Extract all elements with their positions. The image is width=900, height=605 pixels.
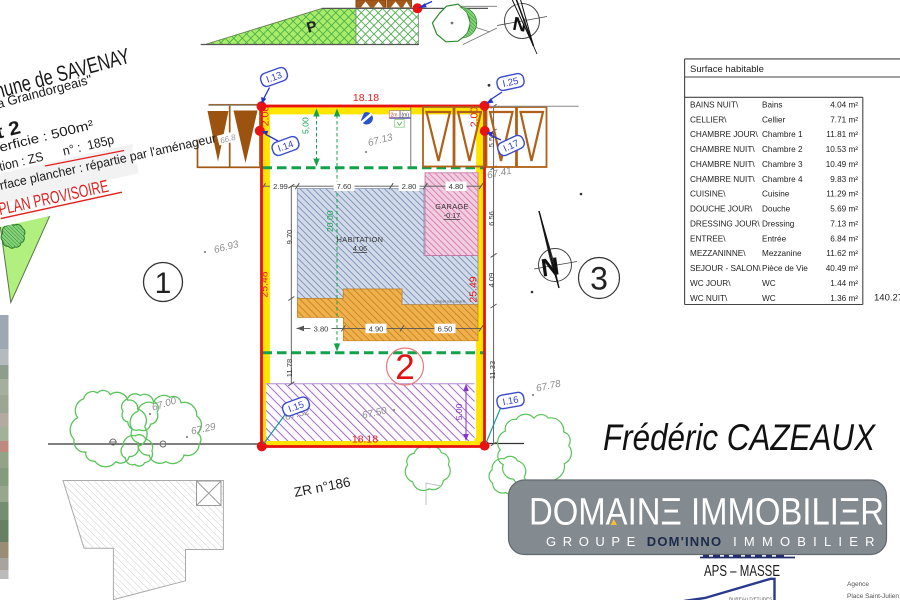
- svg-text:140.27: 140.27: [874, 293, 900, 304]
- svg-text:CHAMBRE NUIT\: CHAMBRE NUIT\: [690, 160, 755, 169]
- svg-text:3: 3: [590, 261, 608, 297]
- svg-text:5,00: 5,00: [301, 117, 311, 134]
- svg-text:BAINS NUIT\: BAINS NUIT\: [690, 101, 739, 110]
- svg-text:2.80: 2.80: [402, 182, 417, 191]
- svg-text:Chambre 3: Chambre 3: [762, 160, 803, 169]
- svg-text:4.04 m²: 4.04 m²: [830, 101, 858, 110]
- svg-text:Chambre 2: Chambre 2: [762, 145, 803, 154]
- svg-text:Entrée: Entrée: [762, 234, 787, 243]
- svg-text:CHAMBRE NUIT\: CHAMBRE NUIT\: [690, 175, 755, 184]
- svg-text:2: 2: [395, 348, 414, 387]
- svg-text:7.60: 7.60: [337, 182, 352, 191]
- svg-text:10.53 m²: 10.53 m²: [826, 145, 859, 154]
- svg-text:Place Saint-Julien 56: Place Saint-Julien 56: [847, 593, 900, 600]
- svg-text:MEZZANINNE\: MEZZANINNE\: [690, 249, 746, 258]
- svg-text:Cellier: Cellier: [762, 115, 785, 124]
- svg-text:18.18: 18.18: [353, 92, 379, 104]
- svg-text:GROUPE DOM'INNO IMMOBILIER: GROUPE DOM'INNO IMMOBILIER: [546, 534, 882, 549]
- svg-text:6.50: 6.50: [438, 324, 453, 333]
- svg-text:40.49 m²: 40.49 m²: [826, 264, 859, 273]
- svg-text:Chambre 1: Chambre 1: [762, 130, 803, 139]
- svg-text:WC NUIT\: WC NUIT\: [690, 294, 728, 303]
- svg-text:Bains: Bains: [762, 101, 782, 110]
- svg-text:CHAMBRE NUIT\: CHAMBRE NUIT\: [690, 145, 755, 154]
- svg-text:4.80: 4.80: [449, 182, 464, 191]
- svg-text:CUISINE\: CUISINE\: [690, 190, 726, 199]
- svg-text:20,00: 20,00: [325, 210, 335, 232]
- svg-text:terrasse non couverte: terrasse non couverte: [435, 300, 466, 304]
- svg-text:11.29 m²: 11.29 m²: [826, 190, 858, 199]
- svg-text:4.06: 4.06: [353, 244, 367, 253]
- svg-text:Agence: Agence: [847, 581, 869, 588]
- svg-text:CELLIER\: CELLIER\: [690, 115, 727, 124]
- svg-text:10.49 m²: 10.49 m²: [826, 160, 859, 169]
- svg-text:4.09: 4.09: [487, 273, 496, 288]
- svg-text:2.99: 2.99: [273, 182, 288, 191]
- svg-text:1.44 m²: 1.44 m²: [830, 279, 858, 288]
- svg-text:11.33: 11.33: [488, 361, 497, 379]
- svg-text:1: 1: [155, 267, 172, 300]
- svg-text:DOUCHE JOUR\: DOUCHE JOUR\: [690, 205, 753, 214]
- svg-text:(m): (m): [402, 112, 410, 118]
- svg-text:Mezzanine: Mezzanine: [762, 249, 802, 258]
- svg-text:4.90: 4.90: [369, 324, 384, 333]
- svg-text:ENTREE\: ENTREE\: [690, 234, 726, 243]
- svg-text:WC: WC: [762, 294, 776, 303]
- svg-text:5.00: 5.00: [454, 403, 464, 420]
- svg-text:2m: 2m: [391, 112, 398, 118]
- svg-text:3.80: 3.80: [314, 324, 329, 333]
- svg-text:Surface habitable: Surface habitable: [690, 64, 764, 75]
- svg-text:9.83 m²: 9.83 m²: [830, 175, 858, 184]
- svg-text:7.13 m²: 7.13 m²: [830, 220, 858, 229]
- svg-text:7.71 m²: 7.71 m²: [830, 115, 858, 124]
- svg-text:APS – MASSE: APS – MASSE: [704, 563, 780, 580]
- svg-text:6.84 m²: 6.84 m²: [830, 234, 858, 243]
- svg-text:25.48: 25.48: [259, 271, 271, 297]
- svg-text:GARAGE: GARAGE: [435, 202, 469, 211]
- svg-text:Dressing: Dressing: [762, 220, 795, 229]
- svg-text:BUREAU D'ETUDES: BUREAU D'ETUDES: [729, 597, 772, 601]
- svg-text:DOMAINΞ IMMOBILIΞR: DOMAINΞ IMMOBILIΞR: [529, 492, 884, 534]
- svg-text:SEJOUR - SALON\: SEJOUR - SALON\: [690, 264, 761, 273]
- svg-text:1.36 m²: 1.36 m²: [830, 294, 858, 303]
- svg-text:11.81 m²: 11.81 m²: [826, 130, 858, 139]
- svg-text:Cuisine: Cuisine: [762, 190, 790, 199]
- svg-text:CHAMBRE JOUR\: CHAMBRE JOUR\: [690, 130, 759, 139]
- svg-text:WC JOUR\: WC JOUR\: [690, 279, 731, 288]
- svg-text:Chambre 4: Chambre 4: [762, 175, 803, 184]
- svg-text:25.49: 25.49: [468, 276, 480, 302]
- svg-text:5.69 m²: 5.69 m²: [830, 205, 858, 214]
- svg-text:DRESSING JOUR\: DRESSING JOUR\: [690, 220, 760, 229]
- svg-text:11.62 m²: 11.62 m²: [826, 249, 858, 258]
- svg-text:Douche: Douche: [762, 205, 791, 214]
- svg-text:HABITATION: HABITATION: [337, 235, 384, 244]
- svg-text:Frédéric CAZEAUX: Frédéric CAZEAUX: [603, 417, 876, 458]
- svg-text:-0.17: -0.17: [444, 211, 461, 220]
- svg-text:6.56: 6.56: [487, 211, 496, 226]
- svg-text:Pièce de Vie: Pièce de Vie: [762, 264, 808, 273]
- svg-text:18.18: 18.18: [352, 434, 378, 446]
- svg-text:9.70: 9.70: [285, 230, 294, 245]
- svg-text:11.78: 11.78: [285, 359, 294, 377]
- svg-text:WC: WC: [762, 279, 776, 288]
